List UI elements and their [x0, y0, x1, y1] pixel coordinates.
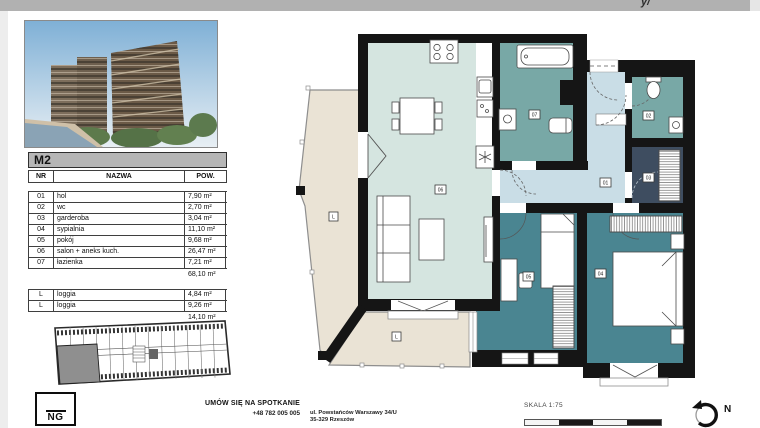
north-arrowhead-icon	[692, 400, 702, 409]
scale-seg	[627, 420, 661, 425]
table-cell: 04	[29, 225, 54, 235]
col-header-nr: NR	[29, 171, 54, 182]
viewer-top-bar: y/	[0, 0, 760, 11]
table-cell: salon + aneks kuch.	[54, 247, 185, 257]
ng-logo: NG	[35, 392, 76, 426]
table-cell: 05	[29, 236, 54, 246]
miniplan-stairs	[133, 346, 145, 362]
table-cell: 03	[29, 214, 54, 224]
table-row: Lloggia9,26 m²	[28, 301, 227, 312]
table-cell: 7,21 m²	[185, 258, 226, 268]
floor-overview-miniplan	[45, 314, 240, 390]
table-cell: 9,68 m²	[185, 236, 226, 246]
table-cell: 07	[29, 258, 54, 268]
scale-bar	[524, 419, 662, 426]
ng-logo-text: NG	[46, 410, 66, 423]
room-rows: 01hol7,90 m²02wc2,70 m²03garderoba3,04 m…	[28, 191, 227, 269]
address-line2: 35-329 Rzeszów	[310, 417, 450, 424]
table-row: 07łazienka7,21 m²	[28, 258, 227, 269]
double-bed	[613, 252, 683, 326]
label-06: 06	[438, 188, 444, 194]
scale-seg	[593, 420, 627, 425]
bathroom-sink	[499, 109, 516, 130]
phone-number: +48 782 005 005	[160, 410, 300, 417]
unit-title-bar: M2	[28, 152, 227, 168]
scrollbar-corner[interactable]	[750, 0, 760, 11]
table-cell: 2,70 m²	[185, 203, 226, 213]
wc-toilet	[647, 82, 660, 99]
label-02: 02	[646, 114, 652, 120]
table-cell: loggia	[54, 290, 185, 300]
dining-table	[400, 98, 434, 134]
wc-sink	[669, 117, 683, 133]
table-cell: 02	[29, 203, 54, 213]
scale-seg	[559, 420, 593, 425]
bathroom-toilet	[549, 118, 572, 133]
label-03: 03	[646, 176, 652, 182]
unit-summary-block: M2 NR NAZWA POW. 01hol7,90 m²02wc2,70 m²…	[28, 152, 227, 323]
clipped-title-fragment: y/	[641, 0, 650, 8]
table-cell: 11,10 m²	[185, 225, 226, 235]
col-header-pow: POW.	[185, 171, 226, 182]
scale-seg	[525, 420, 559, 425]
table-cell: 06	[29, 247, 54, 257]
desk	[501, 259, 517, 301]
table-cell: sypialnia	[54, 225, 185, 235]
table-cell: łazienka	[54, 258, 185, 268]
building-photo	[24, 20, 218, 148]
label-loggia-left: L	[332, 215, 335, 221]
table-cell: hol	[54, 192, 185, 202]
table-row: 05pokój9,68 m²	[28, 236, 227, 247]
table-header-row: NR NAZWA POW.	[28, 170, 227, 183]
screenshot-frame: y/	[0, 0, 760, 428]
kitchen-hob	[477, 100, 493, 117]
miniplan-elevator	[149, 349, 158, 359]
coffee-table	[419, 219, 444, 260]
label-04: 04	[598, 272, 604, 278]
address: ul. Powstańców Warszawy 34/U 35-329 Rzes…	[310, 410, 450, 424]
cta-text: UMÓW SIĘ NA SPOTKANIE	[160, 400, 300, 407]
table-row: Lloggia4,84 m²	[28, 290, 227, 301]
nightstand	[671, 234, 684, 249]
unit-title: M2	[34, 153, 51, 167]
label-05: 05	[526, 275, 532, 281]
table-cell: wc	[54, 203, 185, 213]
loggia-rows: Lloggia4,84 m²Lloggia9,26 m²	[28, 289, 227, 312]
table-row: 02wc2,70 m²	[28, 203, 227, 214]
rooms-total: 68,10 m²	[28, 269, 227, 280]
stove	[430, 40, 458, 63]
table-row: 06salon + aneks kuch.26,47 m²	[28, 247, 227, 258]
single-bed	[541, 214, 574, 288]
table-cell: 01	[29, 192, 54, 202]
scale-label: SKALA 1:75	[524, 402, 563, 409]
label-01: 01	[603, 181, 609, 187]
table-cell: pokój	[54, 236, 185, 246]
table-cell: 3,04 m²	[185, 214, 226, 224]
address-line1: ul. Powstańców Warszawy 34/U	[310, 410, 450, 417]
table-cell: 7,90 m²	[185, 192, 226, 202]
table-cell: loggia	[54, 301, 185, 311]
table-cell: garderoba	[54, 214, 185, 224]
table-row: 03garderoba3,04 m²	[28, 214, 227, 225]
tv-sideboard	[484, 217, 493, 262]
table-cell: L	[29, 290, 54, 300]
col-header-nazwa: NAZWA	[54, 171, 185, 182]
main-building	[111, 41, 185, 137]
table-cell: 26,47 m²	[185, 247, 226, 257]
sofa	[377, 196, 410, 282]
nightstand	[671, 329, 684, 344]
floor-plan: 06 07 01 02 03 05 04 L L	[280, 20, 720, 390]
table-row: 01hol7,90 m²	[28, 192, 227, 203]
label-loggia-bottom: L	[395, 335, 398, 341]
table-cell: 9,26 m²	[185, 301, 226, 311]
table-row: 04sypialnia11,10 m²	[28, 225, 227, 236]
miniplan-highlighted-unit	[57, 344, 100, 384]
north-letter: N	[724, 404, 731, 415]
north-compass: N	[688, 398, 748, 428]
building-photo-art	[25, 21, 217, 147]
table-cell: L	[29, 301, 54, 311]
label-07: 07	[532, 113, 538, 119]
table-cell: 4,84 m²	[185, 290, 226, 300]
